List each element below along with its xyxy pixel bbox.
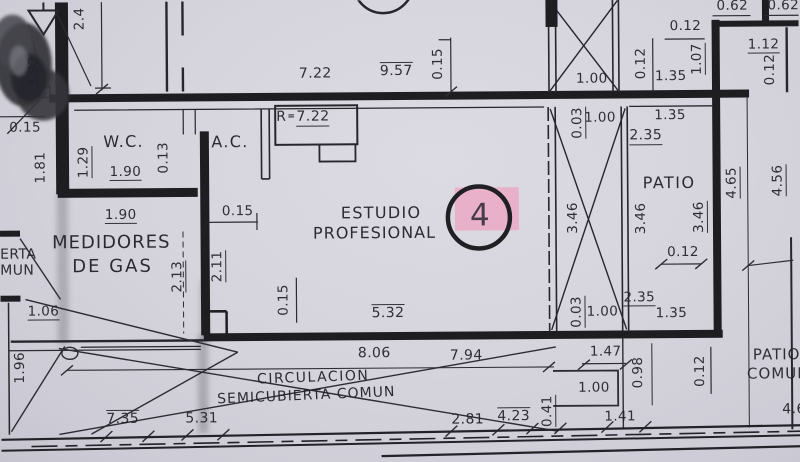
dim-1-00-br: 1.00 bbox=[578, 381, 610, 395]
dim-1-00-shaft-top: 1.00 bbox=[584, 110, 616, 124]
unit-number: 4 bbox=[470, 199, 490, 232]
dim-2-13: 2.13 bbox=[170, 261, 186, 293]
radius-prefix: R bbox=[276, 109, 286, 125]
dim-3-46-patio-a: 3.46 bbox=[634, 203, 648, 235]
dim-0-62-a: 0.62 bbox=[716, 0, 748, 13]
room-label-ac: A.C. bbox=[211, 134, 248, 151]
dim-1-96: 1.96 bbox=[13, 352, 27, 384]
dim-8-06: 8.06 bbox=[358, 346, 391, 361]
dim-4-65: 4.65 bbox=[725, 167, 741, 199]
dim-0-41: 0.41 bbox=[540, 395, 556, 427]
dim-1-29: 1.29 bbox=[76, 146, 92, 178]
dim-4-6: 4.6 bbox=[782, 402, 800, 417]
dim-0-03-bottom: 0.03 bbox=[569, 296, 585, 328]
dim-0-12-patio: 0.12 bbox=[667, 245, 699, 259]
dim-1-90-wc: 1.90 bbox=[110, 165, 142, 181]
dim-1-41: 1.41 bbox=[604, 409, 636, 423]
dim-1-35-top: 1.35 bbox=[655, 69, 687, 83]
dim-2-81: 2.81 bbox=[451, 412, 484, 427]
dim-1-47: 1.47 bbox=[590, 344, 622, 358]
room-label-medidores-1: MEDIDORES bbox=[52, 234, 171, 254]
patio-comun-label-2: COMUN bbox=[747, 366, 800, 382]
room-label-patio: PATIO bbox=[643, 175, 696, 192]
dim-9-57: 9.57 bbox=[380, 62, 413, 79]
dim-0-15-left: 0.15 bbox=[9, 121, 41, 135]
dim-3-46-patio-b: 3.46 bbox=[692, 201, 708, 233]
dim-1-35-patio-top: 1.35 bbox=[654, 108, 686, 122]
dim-1-07: 1.07 bbox=[690, 43, 706, 75]
room-label-estudio-2: PROFESIONAL bbox=[313, 225, 436, 243]
dim-0-12-a: 0.12 bbox=[670, 19, 702, 33]
room-label-wc: W.C. bbox=[103, 134, 144, 151]
room-label-medidores-2: DE GAS bbox=[72, 258, 153, 277]
dim-0-13: 0.13 bbox=[156, 142, 170, 174]
dim-7-22: 7.22 bbox=[299, 66, 332, 81]
dim-5-32: 5.32 bbox=[372, 304, 405, 321]
dim-0-15-ac: 0.15 bbox=[222, 204, 254, 218]
dim-0-62-b: 0.62 bbox=[767, 0, 799, 13]
dim-3-46-shaft: 3.46 bbox=[566, 202, 580, 234]
dim-0-15-est: 0.15 bbox=[276, 284, 290, 316]
dim-1-12: 1.12 bbox=[748, 37, 780, 53]
room-label-estudio-1: ESTUDIO bbox=[341, 205, 422, 222]
shaft-x-brace-lower bbox=[548, 106, 629, 332]
edge-text-mun: MUN bbox=[0, 264, 34, 279]
dim-1-00-shaft-bottom: 1.00 bbox=[587, 304, 619, 318]
dim-2-4: 2.4 bbox=[72, 8, 86, 31]
dim-1-00-top: 1.00 bbox=[576, 72, 608, 86]
radius-equals: = bbox=[286, 112, 296, 122]
radius-value: 7.22 bbox=[296, 108, 329, 126]
dim-5-31: 5.31 bbox=[185, 411, 218, 426]
dim-1-81: 1.81 bbox=[33, 152, 47, 184]
dim-1-90-med: 1.90 bbox=[105, 208, 137, 224]
dim-0-98: 0.98 bbox=[631, 357, 645, 389]
dim-4-56: 4.56 bbox=[771, 165, 787, 197]
dim-0-15-top: 0.15 bbox=[431, 48, 445, 80]
dim-3-82: 3.82 bbox=[27, 56, 41, 88]
scanned-floorplan: 2.4 7.22 9.57 0.15 0.62 0.62 0.12 0.12 1… bbox=[0, 0, 800, 462]
door-symbol bbox=[62, 347, 78, 359]
dim-2-35-patio-top: 2.35 bbox=[629, 128, 662, 145]
dim-0-12-b: 0.12 bbox=[634, 48, 648, 80]
patio-comun-label-1: PATIO bbox=[753, 347, 800, 363]
edge-text-erta: ERTA bbox=[0, 248, 36, 263]
floorplan-canvas: 2.4 7.22 9.57 0.15 0.62 0.62 0.12 0.12 1… bbox=[0, 0, 800, 462]
dim-2-11: 2.11 bbox=[210, 251, 226, 283]
dim-4-23: 4.23 bbox=[497, 407, 530, 424]
dim-7-35: 7.35 bbox=[106, 410, 139, 427]
dim-2-35-patio-b: 2.35 bbox=[623, 290, 655, 306]
dim-1-35-patio-b: 1.35 bbox=[656, 306, 688, 320]
partial-circle-mark bbox=[353, 0, 413, 13]
dim-0-12-br: 0.12 bbox=[693, 355, 707, 387]
dim-0-12-c: 0.12 bbox=[763, 54, 777, 86]
dim-7-94: 7.94 bbox=[450, 348, 483, 363]
dim-1-06: 1.06 bbox=[28, 304, 60, 320]
bottom-street-lines bbox=[1, 425, 800, 459]
radius-annotation: R=7.22 bbox=[276, 109, 330, 124]
